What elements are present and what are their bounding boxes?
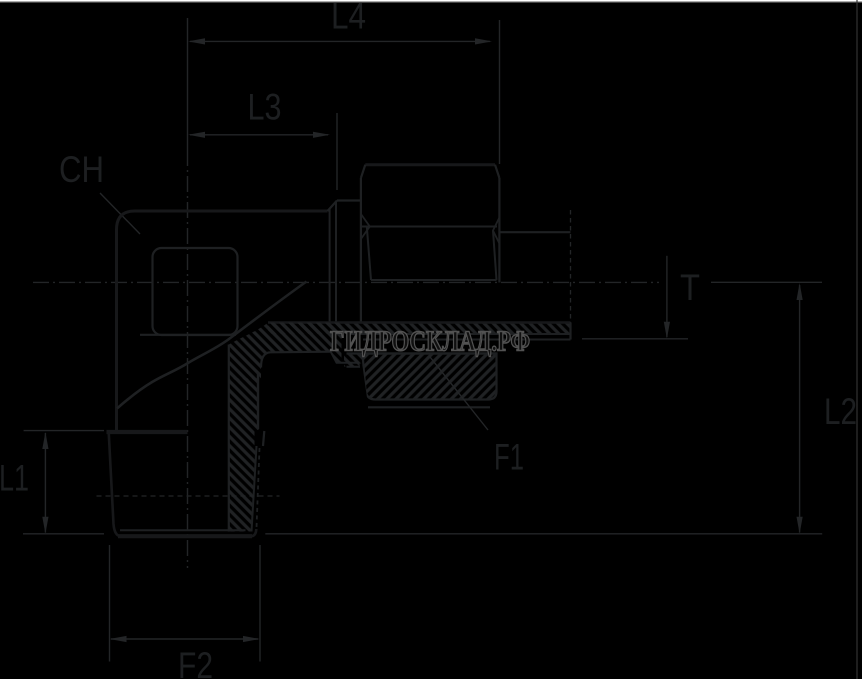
svg-text:L1: L1 (0, 458, 29, 499)
svg-text:L4: L4 (331, 0, 366, 37)
svg-text:L2: L2 (824, 391, 857, 432)
svg-text:CH: CH (59, 149, 104, 190)
svg-text:F2: F2 (178, 645, 213, 679)
svg-text:F1: F1 (494, 437, 524, 478)
svg-text:ГИДРОСКЛАД.РФ: ГИДРОСКЛАД.РФ (330, 326, 530, 358)
svg-text:T: T (680, 267, 700, 308)
svg-text:L3: L3 (248, 87, 282, 128)
